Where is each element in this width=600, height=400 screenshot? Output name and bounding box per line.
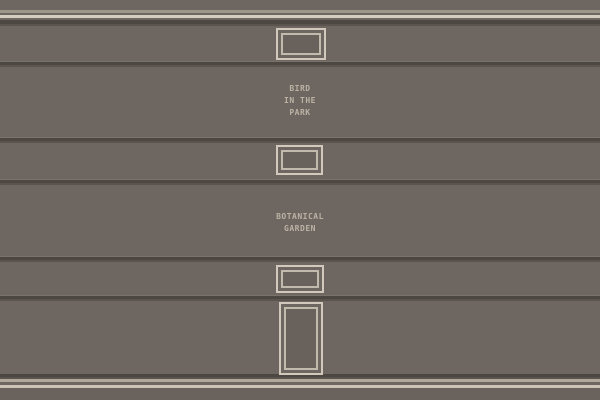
- picture-frame-top[interactable]: [276, 28, 326, 60]
- picture-frame-top-inner: [281, 33, 321, 55]
- plaque-line: BIRD: [250, 83, 350, 95]
- door-panel[interactable]: [279, 302, 323, 375]
- panel-seam-4: [0, 256, 600, 262]
- plaque-line: BOTANICAL: [250, 211, 350, 223]
- plaque-line: GARDEN: [250, 223, 350, 235]
- baseboard-stripe-upper: [0, 379, 600, 382]
- panel-seam-3: [0, 179, 600, 185]
- plaque-line: PARK: [250, 107, 350, 119]
- crown-molding-thin-stripe: [0, 10, 600, 13]
- floor-strip: [0, 388, 600, 400]
- panel-seam-5: [0, 295, 600, 301]
- crown-molding-shadow-soft: [0, 24, 600, 26]
- plaque-botanical-garden: BOTANICAL GARDEN: [250, 211, 350, 235]
- door-panel-inner: [284, 307, 318, 370]
- panel-seam-1: [0, 61, 600, 67]
- gallery-wall: BIRD IN THE PARK BOTANICAL GARDEN: [0, 0, 600, 400]
- crown-molding-bright-stripe: [0, 15, 600, 18]
- picture-frame-middle-inner: [281, 150, 318, 170]
- plaque-line: IN THE: [250, 95, 350, 107]
- picture-frame-lower[interactable]: [276, 265, 324, 293]
- picture-frame-middle[interactable]: [276, 145, 323, 175]
- picture-frame-lower-inner: [281, 270, 319, 288]
- plaque-bird-in-the-park: BIRD IN THE PARK: [250, 83, 350, 119]
- panel-seam-2: [0, 137, 600, 143]
